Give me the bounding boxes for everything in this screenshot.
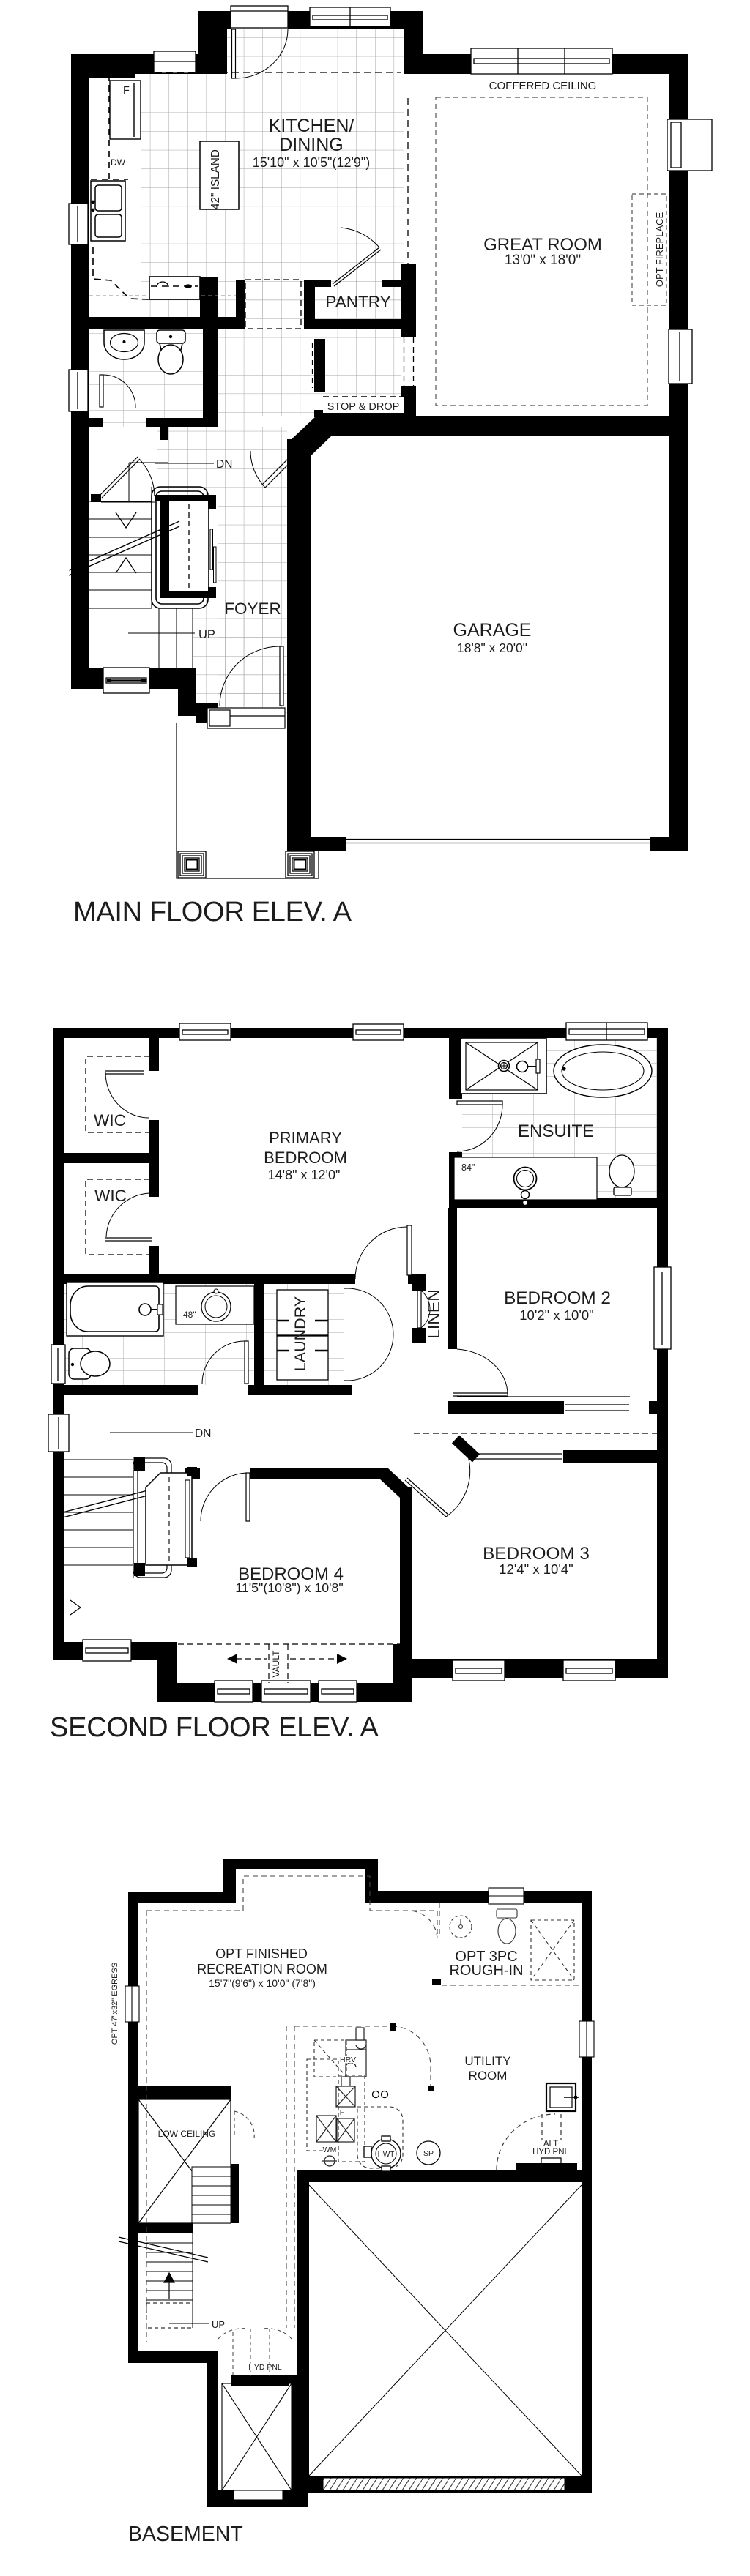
svg-text:DN: DN [216,458,232,471]
svg-text:LAUNDRY: LAUNDRY [292,1296,309,1371]
svg-text:F: F [123,85,130,97]
svg-text:DINING: DINING [279,135,344,155]
svg-text:SECOND FLOOR ELEV. A: SECOND FLOOR ELEV. A [50,1712,379,1743]
svg-text:RECREATION ROOM: RECREATION ROOM [197,1962,327,1976]
svg-text:UP: UP [212,2319,225,2330]
svg-text:11'5"(10'8") x 10'8": 11'5"(10'8") x 10'8" [235,1580,343,1595]
svg-text:KITCHEN/: KITCHEN/ [269,116,354,136]
svg-text:DN: DN [195,1427,211,1440]
svg-text:42" ISLAND: 42" ISLAND [209,149,222,209]
svg-text:ROOM: ROOM [469,2069,508,2083]
svg-text:LINEN: LINEN [424,1289,443,1339]
svg-text:WIC: WIC [94,1111,126,1130]
svg-text:HRV: HRV [340,2056,356,2064]
svg-text:HYD PNL: HYD PNL [248,2363,282,2372]
svg-text:12'4" x 10'4": 12'4" x 10'4" [499,1561,573,1577]
svg-text:15'10" x 10'5"(12'9"): 15'10" x 10'5"(12'9") [253,155,371,170]
svg-text:FOYER: FOYER [224,600,281,618]
svg-text:15'7"(9'6") x 10'0" (7'8"): 15'7"(9'6") x 10'0" (7'8") [209,1977,316,1989]
svg-text:OPT FINISHED: OPT FINISHED [215,1946,308,1961]
svg-text:HWT: HWT [378,2151,395,2159]
svg-text:GREAT ROOM: GREAT ROOM [483,235,602,255]
svg-text:BEDROOM: BEDROOM [264,1149,347,1167]
svg-text:PANTRY: PANTRY [325,293,390,311]
svg-text:COFFERED CEILING: COFFERED CEILING [489,80,597,92]
svg-text:84": 84" [461,1162,475,1173]
svg-text:BEDROOM 3: BEDROOM 3 [483,1544,590,1564]
svg-text:GARAGE: GARAGE [453,620,532,641]
svg-text:PRIMARY: PRIMARY [269,1129,342,1147]
svg-text:UP: UP [198,628,215,641]
svg-text:OPT FIREPLACE: OPT FIREPLACE [654,212,665,287]
svg-text:UTILITY: UTILITY [464,2054,510,2068]
svg-text:13'0" x 18'0": 13'0" x 18'0" [505,253,581,268]
svg-text:F: F [340,2108,344,2117]
svg-text:DW: DW [111,157,126,168]
svg-text:18'8" x 20'0": 18'8" x 20'0" [457,641,527,655]
svg-text:WIC: WIC [94,1187,127,1205]
svg-text:HYD PNL: HYD PNL [532,2148,569,2157]
svg-text:BEDROOM 2: BEDROOM 2 [504,1288,611,1308]
svg-text:14'8" x 12'0": 14'8" x 12'0" [268,1168,341,1182]
svg-text:WM: WM [323,2146,337,2154]
svg-text:OPT 47"x32" EGRESS: OPT 47"x32" EGRESS [111,1963,119,2045]
svg-text:LOW CEILING: LOW CEILING [158,2129,216,2139]
svg-text:BASEMENT: BASEMENT [128,2523,243,2546]
svg-text:MAIN FLOOR ELEV. A: MAIN FLOOR ELEV. A [73,897,352,927]
svg-text:ENSUITE: ENSUITE [518,1121,594,1141]
svg-text:ROUGH-IN: ROUGH-IN [449,1963,523,1979]
svg-text:STOP & DROP: STOP & DROP [327,401,400,413]
svg-text:SP: SP [423,2149,434,2158]
svg-text:48": 48" [183,1310,196,1320]
svg-text:10'2" x 10'0": 10'2" x 10'0" [519,1307,593,1323]
svg-text:VAULT: VAULT [271,1650,281,1678]
